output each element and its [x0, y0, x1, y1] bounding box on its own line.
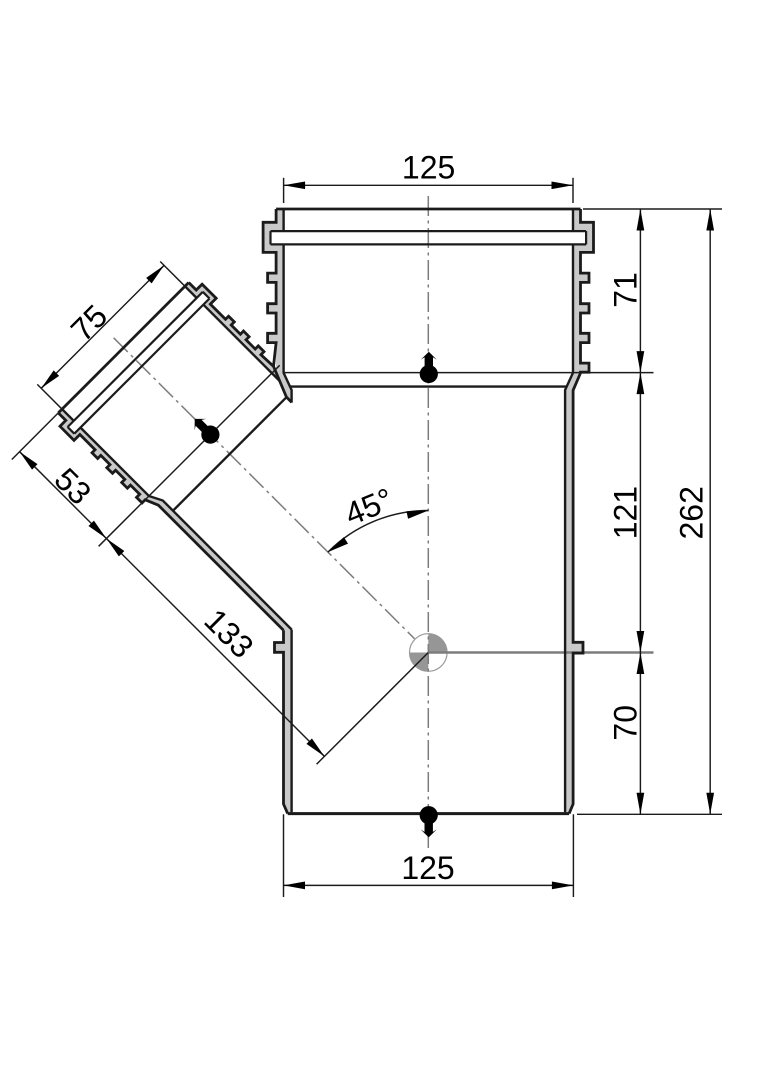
svg-text:71: 71: [607, 272, 643, 308]
svg-text:262: 262: [674, 486, 710, 539]
svg-text:70: 70: [607, 705, 643, 741]
svg-text:125: 125: [402, 149, 455, 185]
svg-text:121: 121: [607, 486, 643, 539]
svg-text:125: 125: [401, 850, 454, 886]
